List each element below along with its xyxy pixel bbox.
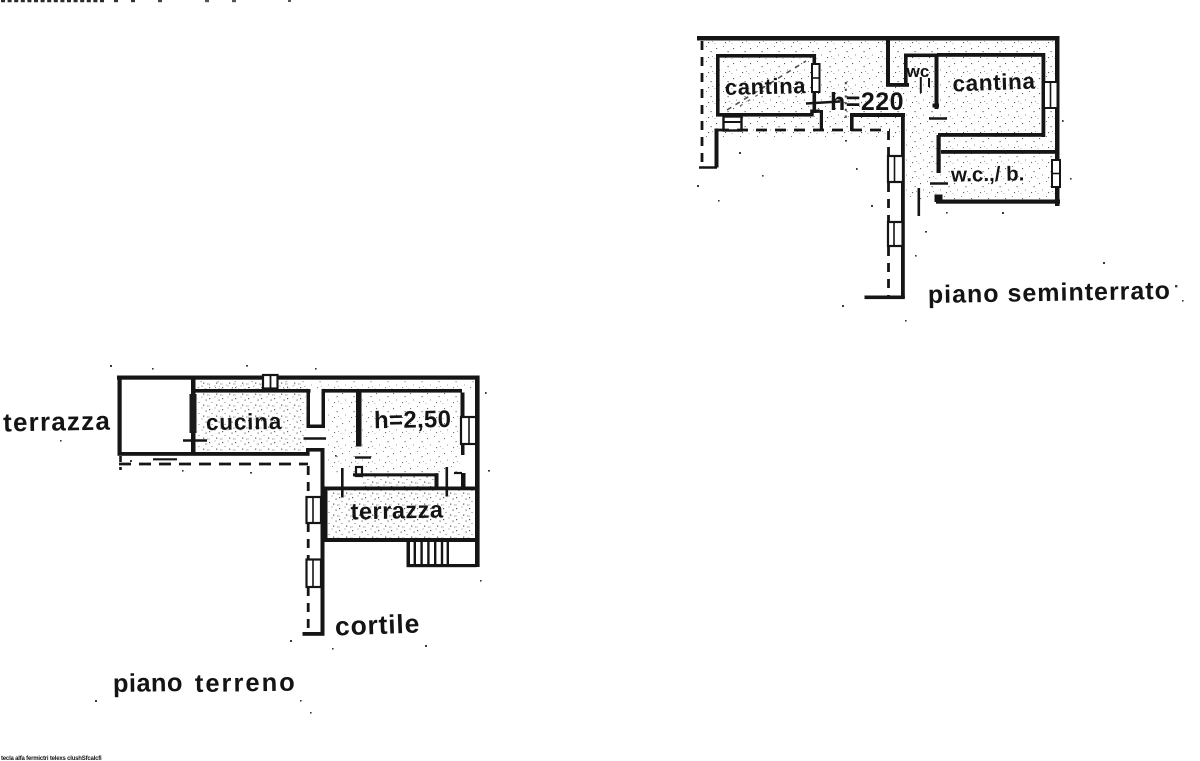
svg-text:h=220: h=220 — [830, 88, 904, 116]
svg-text:piano: piano — [113, 669, 183, 698]
svg-text:wc: wc — [906, 62, 930, 81]
svg-text:w.c.,/ b.: w.c.,/ b. — [950, 162, 1025, 186]
svg-text:cantina: cantina — [725, 73, 807, 100]
svg-text:terreno: terreno — [195, 669, 297, 698]
svg-text:terrazza: terrazza — [3, 406, 111, 438]
svg-text:cortile: cortile — [334, 609, 420, 642]
svg-text:piano seminterrato: piano seminterrato — [928, 277, 1172, 309]
svg-text:tecla alfa fermictri telexs cl: tecla alfa fermictri telexs clushSfcalcf… — [1, 756, 102, 761]
svg-text:cantina: cantina — [952, 69, 1036, 97]
svg-text:h=2,50: h=2,50 — [374, 406, 452, 434]
svg-text:terrazza: terrazza — [350, 496, 444, 524]
svg-text:cucina: cucina — [206, 409, 283, 435]
